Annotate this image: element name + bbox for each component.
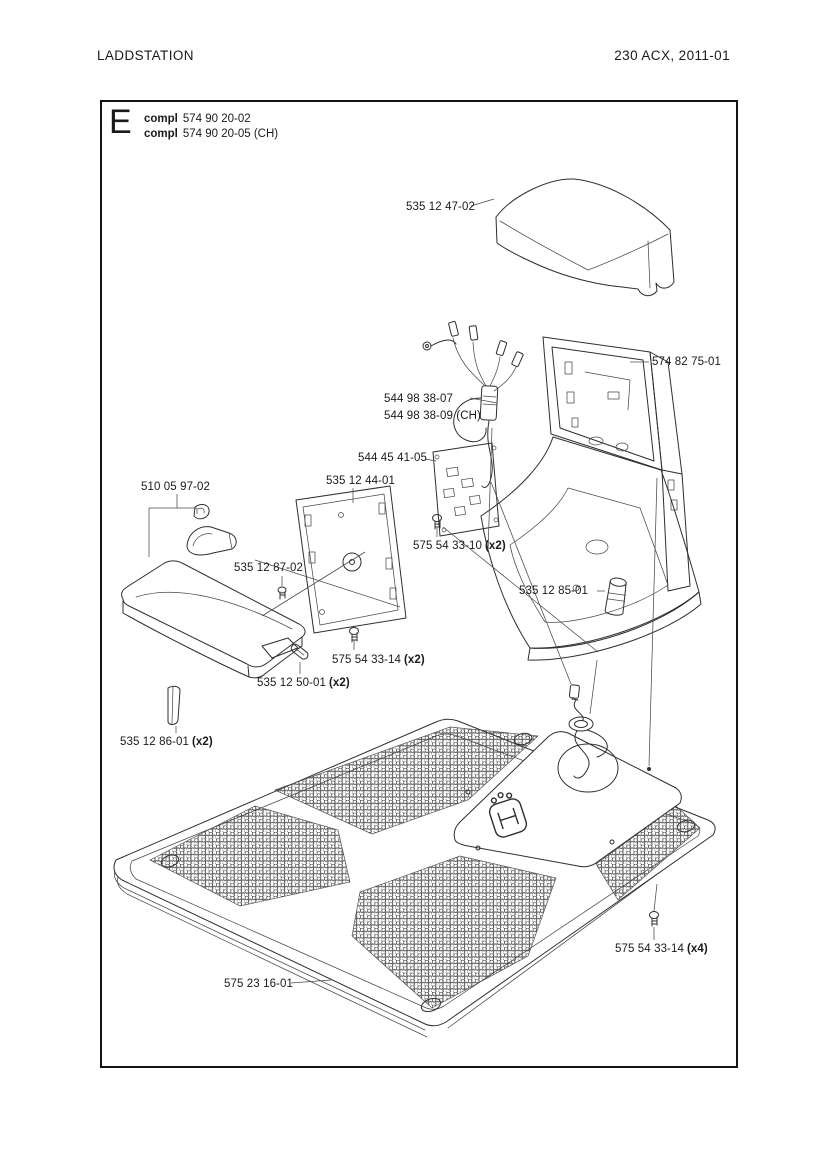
part-label-pin-50-01: 535 12 50-01(x2) xyxy=(257,677,350,689)
page-title: LADDSTATION xyxy=(97,48,194,63)
screw-535-12-87-02-icon xyxy=(278,587,286,599)
part-label-mounting-plate: 535 12 44-01 xyxy=(326,475,398,487)
screw-575-54-33-10-icon xyxy=(433,515,442,530)
part-qty xyxy=(293,978,296,990)
parts-catalog-page: { "page": { "header_left": "LADDSTATION"… xyxy=(0,0,826,1169)
part-mounting-plate xyxy=(296,486,406,633)
part-number: 535 12 87-02 xyxy=(234,562,303,574)
model-and-date: 230 ACX, 2011-01 xyxy=(614,48,730,63)
part-label-screw-33-14-x2: 575 54 33-14(x2) xyxy=(332,654,425,666)
part-top-cover xyxy=(496,179,674,296)
part-label-screw-87-02: 535 12 87-02 xyxy=(234,562,306,574)
screw-575-54-33-14-x4-icon xyxy=(650,912,659,927)
part-label-wiring-harness-ch: 544 98 38-09 (CH) xyxy=(384,410,484,422)
part-label-main-housing: 574 82 75-01 xyxy=(652,356,724,368)
part-number: 544 45 41-05 xyxy=(358,452,427,464)
part-qty xyxy=(588,585,591,597)
part-qty xyxy=(427,452,430,464)
part-number: 575 54 33-10 xyxy=(413,540,482,552)
part-qty: (x2) xyxy=(189,736,213,748)
part-label-screw-33-14-x4: 575 54 33-14(x4) xyxy=(615,943,708,955)
part-label-circuit-board: 544 45 41-05 xyxy=(358,452,430,464)
part-number: 535 12 86-01 xyxy=(120,736,189,748)
part-label-strip-86-01: 535 12 86-01(x2) xyxy=(120,736,213,748)
exploded-diagram xyxy=(100,100,738,1068)
part-number: 575 54 33-14 xyxy=(615,943,684,955)
part-qty xyxy=(721,356,724,368)
part-number: 510 05 97-02 xyxy=(141,481,210,493)
part-number: 544 98 38-09 (CH) xyxy=(384,410,481,422)
screw-575-54-33-14-icon xyxy=(350,628,359,643)
part-label-top-cover: 535 12 47-02 xyxy=(406,201,478,213)
part-qty xyxy=(395,475,398,487)
part-strip-535-12-86-01 xyxy=(168,686,180,724)
part-qty xyxy=(453,393,456,405)
part-label-handle-assembly: 510 05 97-02 xyxy=(141,481,213,493)
part-left-cover xyxy=(122,561,306,678)
part-qty xyxy=(481,410,484,422)
part-number: 575 54 33-14 xyxy=(332,654,401,666)
part-qty xyxy=(303,562,306,574)
part-number: 574 82 75-01 xyxy=(652,356,721,368)
part-main-housing xyxy=(481,337,701,660)
part-number: 575 23 16-01 xyxy=(224,978,293,990)
part-number: 535 12 50-01 xyxy=(257,677,326,689)
part-number: 535 12 47-02 xyxy=(406,201,475,213)
part-pin-535-12-50-01 xyxy=(290,643,310,661)
part-qty: (x2) xyxy=(482,540,506,552)
part-label-base-plate: 575 23 16-01 xyxy=(224,978,296,990)
part-qty xyxy=(210,481,213,493)
part-qty: (x2) xyxy=(401,654,425,666)
part-qty: (x4) xyxy=(684,943,708,955)
part-label-wiring-harness: 544 98 38-07 xyxy=(384,393,456,405)
part-label-cylinder: 535 12 85-01 xyxy=(519,585,591,597)
part-number: 535 12 85-01 xyxy=(519,585,588,597)
part-number: 544 98 38-07 xyxy=(384,393,453,405)
part-number: 535 12 44-01 xyxy=(326,475,395,487)
part-qty xyxy=(475,201,478,213)
part-handle xyxy=(187,505,236,555)
part-qty: (x2) xyxy=(326,677,350,689)
part-label-screw-33-10: 575 54 33-10(x2) xyxy=(413,540,506,552)
